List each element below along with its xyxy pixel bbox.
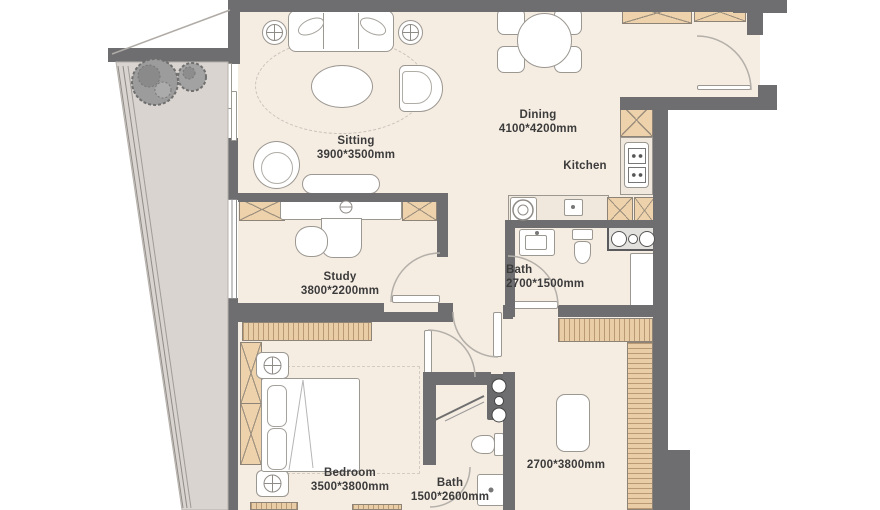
room-label-dining: Dining 4100*4200mm [478,108,598,136]
plant-icon [132,59,178,105]
room-dims: 2700*3800mm [506,458,626,472]
wall-bath2-top [423,372,491,385]
sofa-pillow [357,14,389,39]
room-name: Kitchen [545,159,625,173]
study-window [227,199,237,299]
desk-chair [295,226,328,257]
room-label-sitting: Sitting 3900*3500mm [296,134,416,162]
balcony-railing [123,66,187,508]
bedroom2-wardrobe [627,342,653,510]
room-label-bedroom2: 2700*3800mm [506,458,626,472]
balcony-railing [118,66,183,508]
wall-top-right-block [733,0,787,13]
wall-vestibule-bottom [620,97,777,110]
washing-machine [510,197,537,222]
wall-vestibule-end-block [758,85,777,110]
plant-icon [178,63,206,91]
armchair-seat [402,71,432,104]
entry-door-leaf [697,85,751,90]
wall-left-mid [227,138,238,200]
balcony-floor [116,62,228,510]
tv-console [302,174,380,194]
room-label-study: Study 3800*2200mm [280,270,400,298]
wall-bath1-door-post [503,305,513,319]
bedroom2-bench [558,318,653,342]
balcony-sliding-door-panel [231,91,237,141]
side-table [398,20,423,45]
room-name: Sitting [296,134,416,148]
room-name: Bath [384,476,516,490]
bedroom-headboard-shelf [242,322,372,341]
toilet-tank [572,229,593,240]
room-name: Dining [478,108,598,122]
sofa [288,10,394,52]
nightstand [256,470,289,497]
room-name: Bath [506,263,596,277]
room-dims: 3800*2200mm [280,284,400,298]
wall-right-bottom-block [653,450,690,510]
wall-bedroom-top [224,312,453,322]
kitchen-hob [624,142,649,188]
hob-burner [628,148,646,164]
coffee-table [311,65,373,108]
wall-top-main [228,0,733,12]
bedroom-ac-unit [352,504,402,510]
kitchen-sink [564,199,583,216]
bedroom-ac-unit [250,502,298,510]
swivel-chair [253,141,300,189]
bath-door-leaf [510,301,558,309]
wall-left-top [228,0,240,64]
bathroom-vanity [519,229,555,256]
wall-left-lower [224,298,238,510]
balcony-railing [128,66,191,508]
room-dims: 3900*3500mm [296,148,416,162]
toilet-bowl [471,435,495,454]
side-table [262,20,287,45]
sofa-divider [323,13,324,49]
wall-sitting-study [238,193,448,202]
hob-burner [628,167,646,183]
room-label-bath-upper: Bath 2700*1500mm [506,263,596,291]
toilet-bowl [574,241,591,264]
hall-door-leaf [493,312,502,357]
wall-bedroom2-top [558,305,668,317]
bedroom2-table [556,394,590,452]
room-label-bath-lower: Bath 1500*2600mm [384,476,516,504]
bedroom-wardrobe [240,403,262,465]
nightstand [256,352,289,379]
room-dims: 1500*2600mm [384,490,516,504]
floor-plan: Sitting 3900*3500mm Dining 4100*4200mm K… [0,0,880,510]
dining-table [517,13,572,68]
wall-bath1-top [505,220,668,228]
bed-pillow [267,428,287,470]
swivel-chair-seat [261,152,293,184]
stove [607,226,655,251]
room-label-kitchen: Kitchen [545,159,625,173]
room-dims: 4100*4200mm [478,122,598,136]
wall-entry-jut [747,13,763,35]
wall-balcony-top [108,48,240,62]
wall-study-door-post [438,303,453,312]
wall-study-bottom [224,303,384,312]
sofa-divider [358,13,359,49]
wall-bath2-left [423,372,436,465]
room-dims: 2700*1500mm [506,277,596,291]
wall-study-right [437,195,448,257]
bed [261,378,360,472]
wall-right-main [653,97,668,453]
vanity-basin [525,235,547,250]
room-name: Study [280,270,400,284]
bed-pillow [267,385,287,427]
bedroom-door-leaf [424,330,432,377]
